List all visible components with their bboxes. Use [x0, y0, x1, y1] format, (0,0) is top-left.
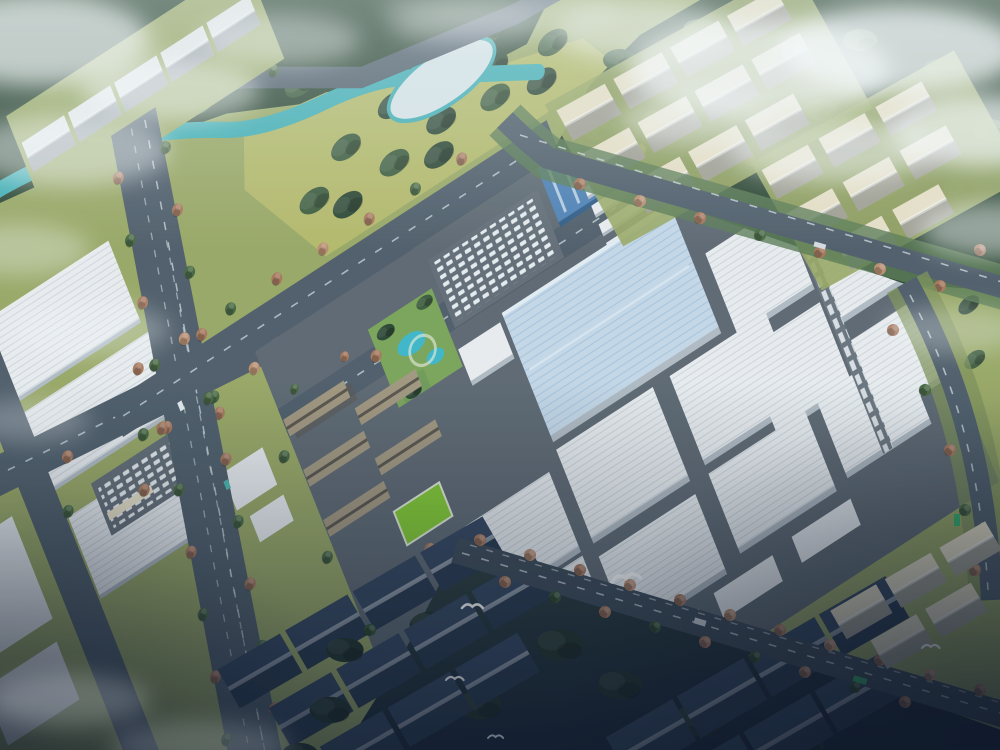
rendering-stage — [0, 0, 1000, 750]
aerial-rendering — [0, 0, 1000, 750]
